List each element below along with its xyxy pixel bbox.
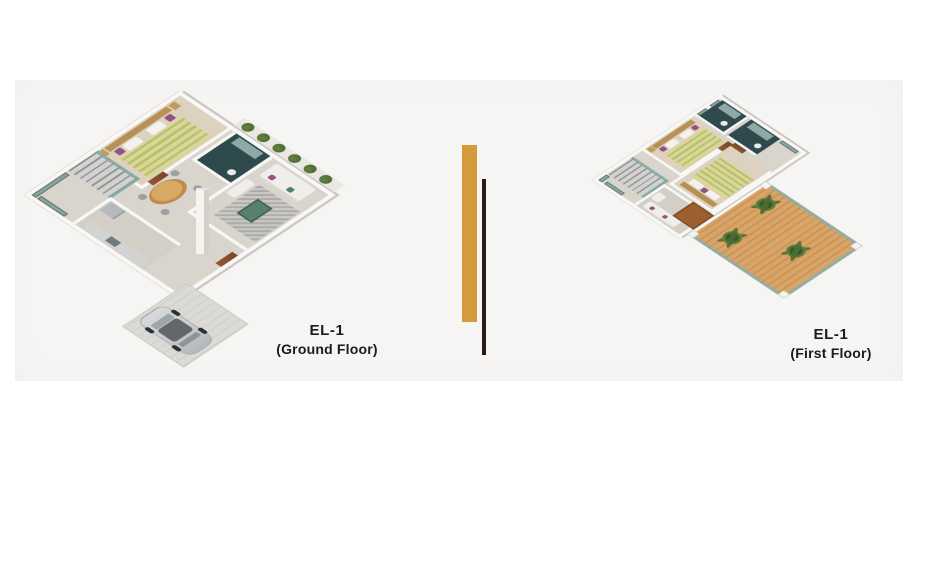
dining-chair <box>169 169 182 178</box>
accent-pillow <box>690 125 699 131</box>
railing-post <box>851 242 861 249</box>
sofa-cushion <box>661 215 668 220</box>
first-floor-plan-image <box>592 95 847 266</box>
first-floor-label-subtitle: (First Floor) <box>726 345 936 361</box>
sofa-cushion <box>285 186 295 193</box>
porch-pillar <box>196 190 209 254</box>
railing-post <box>761 182 771 189</box>
railing-post <box>688 230 698 237</box>
window <box>37 196 68 217</box>
palm-plant <box>715 226 750 249</box>
toilet <box>752 142 762 149</box>
dining-chair <box>136 193 149 202</box>
toilet <box>719 120 729 127</box>
bath-counter <box>718 103 742 119</box>
dining-chair <box>159 208 172 217</box>
railing-post <box>779 291 789 298</box>
divider-dark-bar <box>482 179 486 355</box>
page: EL-1 (Ground Floor) EL-1 (First Floor) <box>0 0 944 562</box>
sofa-cushion <box>649 206 656 211</box>
armchair <box>650 192 666 203</box>
palm-plant <box>748 193 783 216</box>
front-door <box>215 252 238 267</box>
window <box>779 140 799 153</box>
sofa-cushion <box>267 174 277 181</box>
ground-floor-building <box>24 91 335 299</box>
ground-floor-label-subtitle: (Ground Floor) <box>222 341 432 357</box>
ground-floor-plan-image <box>24 91 335 299</box>
bath-counter <box>747 123 774 141</box>
ground-floor-label: EL-1 (Ground Floor) <box>222 322 432 357</box>
first-floor-label-title: EL-1 <box>726 326 936 343</box>
floor-plans-image: EL-1 (Ground Floor) EL-1 (First Floor) <box>15 80 903 381</box>
first-floor-label: EL-1 (First Floor) <box>726 326 936 361</box>
ground-floor-label-title: EL-1 <box>222 322 432 339</box>
toilet <box>225 168 238 177</box>
window <box>32 172 70 198</box>
palm-plant <box>779 239 814 262</box>
refrigerator <box>99 202 125 220</box>
divider-gold-bar <box>462 145 477 322</box>
